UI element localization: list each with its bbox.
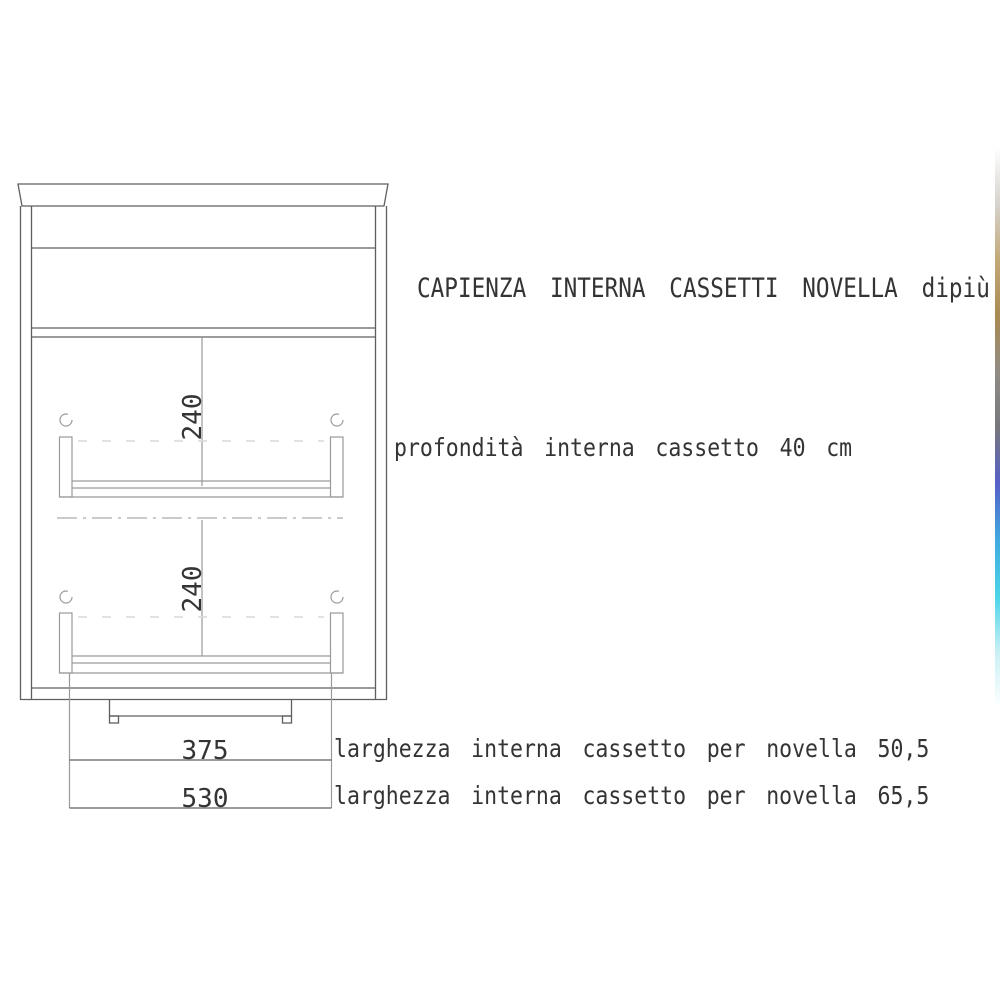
bottom-drawer-left-runner-circle-icon	[60, 591, 72, 603]
bottom-drawer-right-side-rail	[331, 613, 344, 673]
scan-edge-gradient-strip	[995, 148, 1000, 708]
right-foot	[283, 716, 292, 723]
scanned-technical-drawing-page: CAPIENZA INTERNA CASSETTI NOVELLA dipiù …	[0, 0, 1000, 1000]
width-annotation-novella-505: larghezza interna cassetto per novella 5…	[334, 734, 929, 763]
top-drawer-left-side-rail	[60, 437, 73, 497]
top-drawer-right-runner-circle-icon	[331, 414, 343, 426]
dimension-label-240-bottom: 240	[178, 565, 202, 613]
top-drawer-left-runner-circle-icon	[60, 414, 72, 426]
bottom-drawer-right-runner-circle-icon	[331, 591, 343, 603]
left-foot	[110, 716, 119, 723]
drawing-title: CAPIENZA INTERNA CASSETTI NOVELLA dipiù	[417, 273, 990, 304]
top-drawer-right-side-rail	[331, 437, 344, 497]
depth-annotation: profondità interna cassetto 40 cm	[394, 433, 852, 462]
bottom-drawer-left-side-rail	[60, 613, 73, 673]
width-annotation-novella-655: larghezza interna cassetto per novella 6…	[334, 781, 929, 810]
dimension-label-530: 530	[170, 784, 240, 814]
dimension-label-240-top: 240	[178, 393, 202, 441]
countertop	[18, 184, 388, 206]
cabinet-cross-section-drawing	[0, 0, 1000, 1000]
dimension-label-375: 375	[170, 736, 240, 766]
